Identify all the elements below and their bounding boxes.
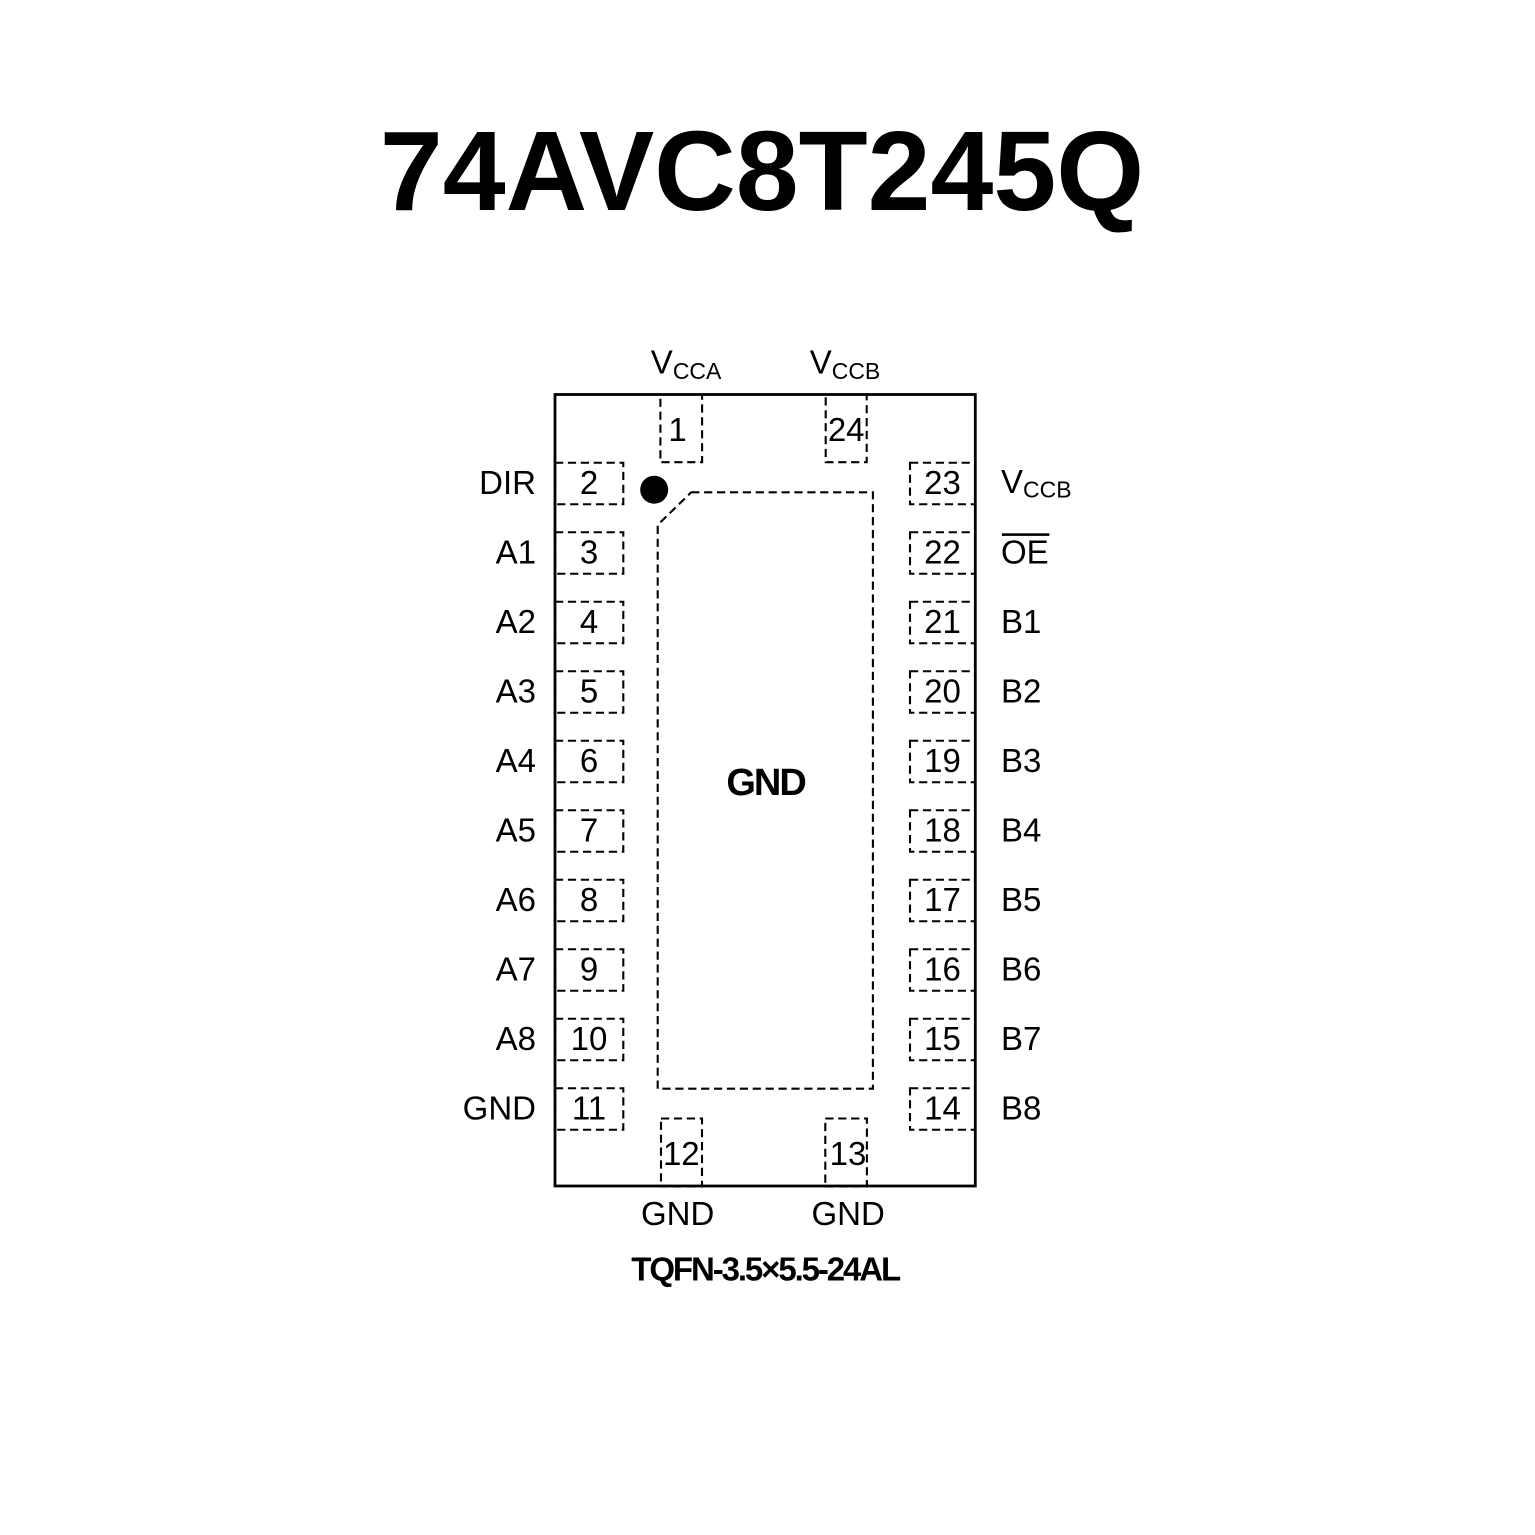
svg-text:B7: B7 bbox=[1001, 1020, 1041, 1057]
svg-text:B8: B8 bbox=[1001, 1090, 1041, 1127]
svg-text:B3: B3 bbox=[1001, 742, 1041, 779]
svg-text:21: 21 bbox=[924, 603, 961, 640]
svg-text:6: 6 bbox=[580, 742, 598, 779]
svg-text:A1: A1 bbox=[496, 534, 536, 571]
svg-text:24: 24 bbox=[828, 411, 865, 448]
svg-text:B6: B6 bbox=[1001, 951, 1041, 988]
svg-text:A7: A7 bbox=[496, 951, 536, 988]
svg-text:B4: B4 bbox=[1001, 812, 1041, 849]
svg-text:B1: B1 bbox=[1001, 603, 1041, 640]
svg-text:17: 17 bbox=[924, 881, 961, 918]
svg-text:A2: A2 bbox=[496, 603, 536, 640]
svg-text:GND: GND bbox=[726, 762, 805, 804]
svg-text:3: 3 bbox=[580, 534, 598, 571]
svg-text:OE: OE bbox=[1001, 534, 1049, 571]
svg-text:11: 11 bbox=[572, 1090, 606, 1127]
svg-text:20: 20 bbox=[924, 673, 961, 710]
svg-text:4: 4 bbox=[580, 603, 598, 640]
svg-text:A5: A5 bbox=[496, 812, 536, 849]
svg-text:74AVC8T245Q: 74AVC8T245Q bbox=[380, 108, 1144, 234]
svg-text:GND: GND bbox=[463, 1090, 536, 1127]
svg-text:DIR: DIR bbox=[479, 464, 536, 501]
svg-text:12: 12 bbox=[663, 1135, 700, 1172]
svg-text:9: 9 bbox=[580, 951, 598, 988]
svg-text:10: 10 bbox=[571, 1020, 608, 1057]
svg-text:A6: A6 bbox=[496, 881, 536, 918]
svg-text:16: 16 bbox=[924, 951, 961, 988]
svg-text:B5: B5 bbox=[1001, 881, 1041, 918]
svg-text:22: 22 bbox=[924, 534, 961, 571]
svg-text:8: 8 bbox=[580, 881, 598, 918]
svg-text:B2: B2 bbox=[1001, 673, 1041, 710]
svg-text:2: 2 bbox=[580, 464, 598, 501]
svg-text:13: 13 bbox=[830, 1135, 867, 1172]
svg-text:A8: A8 bbox=[496, 1020, 536, 1057]
svg-text:A4: A4 bbox=[496, 742, 536, 779]
svg-text:GND: GND bbox=[812, 1195, 885, 1232]
svg-text:18: 18 bbox=[924, 812, 961, 849]
svg-text:GND: GND bbox=[641, 1195, 714, 1232]
svg-text:7: 7 bbox=[580, 812, 598, 849]
svg-text:5: 5 bbox=[580, 673, 598, 710]
svg-text:23: 23 bbox=[924, 464, 961, 501]
svg-text:14: 14 bbox=[924, 1090, 961, 1127]
svg-text:15: 15 bbox=[924, 1020, 961, 1057]
svg-text:A3: A3 bbox=[496, 673, 536, 710]
svg-text:1: 1 bbox=[668, 411, 686, 448]
svg-text:TQFN-3.5×5.5-24AL: TQFN-3.5×5.5-24AL bbox=[631, 1251, 901, 1288]
svg-text:19: 19 bbox=[924, 742, 961, 779]
